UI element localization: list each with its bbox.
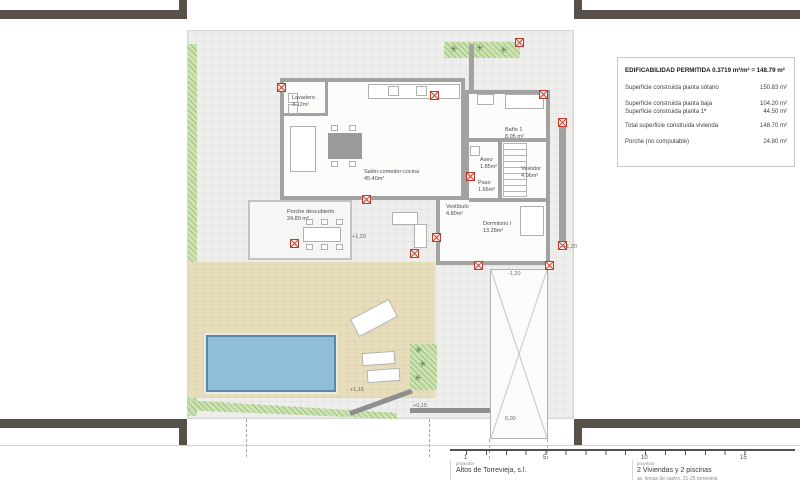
porch-chair bbox=[336, 244, 343, 250]
room-label-porche: Porche descubierto 24.80 m² bbox=[287, 209, 349, 223]
titleblock-divider bbox=[632, 460, 633, 480]
porch-table bbox=[303, 227, 341, 242]
proyecto-label: proyecto bbox=[637, 461, 654, 466]
room-area: 4.80m² bbox=[446, 211, 486, 218]
porch-chair bbox=[321, 244, 328, 250]
info-label: Superficie construida planta 1ª bbox=[625, 109, 706, 115]
plant-icon: ✳ bbox=[450, 45, 458, 54]
room-name: Vestíbulo bbox=[446, 204, 486, 211]
column-marker bbox=[474, 261, 483, 270]
sun-lounger bbox=[367, 368, 401, 383]
room-label-aseo: Aseo 1.85m² bbox=[480, 157, 510, 171]
sink-icon bbox=[416, 86, 427, 96]
room-area: 3.12m² bbox=[292, 102, 332, 109]
column-marker bbox=[290, 239, 299, 248]
swimming-pool bbox=[206, 335, 336, 392]
detached-wall-east bbox=[559, 122, 566, 248]
garden-wall-north bbox=[469, 44, 474, 90]
room-label-dormitorio: Dormitorio I 13.28m² bbox=[483, 221, 529, 235]
info-row: Total superficie construida vivienda 148… bbox=[625, 123, 787, 129]
level-mark-porch: +1,20 bbox=[352, 234, 366, 240]
column-marker bbox=[515, 38, 524, 47]
planting-strip-north: ✳ ✳ ✳ bbox=[444, 42, 520, 58]
level-mark-path: +0,15 bbox=[413, 403, 427, 409]
info-label: Total superficie construida vivienda bbox=[625, 123, 718, 129]
info-value: 44.50 m² bbox=[763, 109, 787, 115]
room-area: 1.85m² bbox=[480, 164, 510, 171]
scale-bar-ticks bbox=[466, 451, 747, 455]
room-name: Paso bbox=[478, 180, 508, 187]
room-label-lavadero: Lavadero 3.12m² bbox=[292, 95, 332, 109]
room-name: Porche descubierto bbox=[287, 209, 349, 216]
promotor-label: promotor bbox=[456, 461, 474, 466]
plant-icon: ✳ bbox=[419, 360, 427, 369]
column-marker bbox=[539, 90, 548, 99]
titleblock-divider bbox=[450, 460, 451, 480]
cooktop-icon bbox=[388, 86, 399, 96]
planting-bed-pool: ✳ ✳ ✳ bbox=[410, 344, 437, 390]
edificability-info-box: EDIFICABILIDAD PERMITIDA 0.3719 m²/m² = … bbox=[617, 57, 795, 167]
room-label-paso: Paso 1.66m² bbox=[478, 180, 508, 194]
boundary-wall-bottom-right bbox=[582, 419, 800, 428]
info-value: 24.80 m² bbox=[763, 139, 787, 145]
ramp-cross-lines bbox=[491, 270, 547, 438]
level-mark-solarium: +1,15 bbox=[350, 387, 364, 393]
info-value: 150.83 m² bbox=[760, 85, 787, 91]
promotor-name: Altos de Torrevieja, s.l. bbox=[456, 467, 526, 474]
room-label-bano: Baño 1 8.05 m² bbox=[505, 127, 545, 141]
boundary-wall-stub-bottom-right bbox=[574, 419, 582, 445]
floor-plan-sheet: ✳ ✳ ✳ ✳ ✳ ✳ bbox=[0, 0, 800, 480]
room-label-vestidor: Vestidor 4.06m² bbox=[521, 166, 555, 180]
reference-line bbox=[246, 419, 247, 457]
room-name: Salón-comedor-cocina bbox=[364, 169, 428, 176]
bath-sink bbox=[477, 94, 494, 105]
boundary-wall-stub-top-left bbox=[179, 0, 187, 19]
room-label-salon: Salón-comedor-cocina 45.40m² bbox=[364, 169, 428, 183]
porch-chair bbox=[306, 244, 313, 250]
room-name: Baño 1 bbox=[505, 127, 545, 134]
column-marker bbox=[558, 118, 567, 127]
room-name: Dormitorio I bbox=[483, 221, 529, 228]
basement-ramp bbox=[490, 269, 548, 439]
boundary-wall-stub-top-right bbox=[574, 0, 582, 19]
kitchen-counter-north bbox=[368, 84, 460, 99]
kitchen-counter-west bbox=[290, 126, 316, 172]
room-area: 13.28m² bbox=[483, 228, 529, 235]
room-name: Lavadero bbox=[292, 95, 332, 102]
room-area: 4.06m² bbox=[521, 173, 555, 180]
dining-chair bbox=[331, 125, 338, 131]
proyecto-name: 2 Viviendas y 2 piscinas bbox=[637, 467, 712, 474]
dining-chair bbox=[331, 161, 338, 167]
room-label-vestibulo: Vestíbulo 4.80m² bbox=[446, 204, 486, 218]
room-name: Vestidor bbox=[521, 166, 555, 173]
sofa bbox=[414, 224, 427, 248]
info-value: 148.70 m² bbox=[760, 123, 787, 129]
info-label: Porche (no computable) bbox=[625, 139, 689, 145]
info-row: Superficie construida planta 1ª 44.50 m² bbox=[625, 109, 787, 115]
sun-lounger bbox=[362, 351, 396, 366]
plant-icon: ✳ bbox=[500, 46, 508, 55]
dining-chair bbox=[349, 161, 356, 167]
room-area: 1.66m² bbox=[478, 187, 508, 194]
plant-icon: ✳ bbox=[415, 346, 423, 355]
info-label: Superficie construida planta baja bbox=[625, 101, 712, 107]
room-area: 45.40m² bbox=[364, 176, 428, 183]
room-area: 24.80 m² bbox=[287, 216, 349, 223]
dimension-ramp-width: 6,00 bbox=[505, 416, 516, 422]
reference-line bbox=[429, 419, 430, 457]
boundary-wall-top-left bbox=[0, 10, 179, 19]
boundary-wall-top-right bbox=[582, 10, 800, 19]
plant-icon: ✳ bbox=[476, 44, 484, 53]
info-row: Superficie construida planta sótano 150.… bbox=[625, 85, 787, 91]
column-marker bbox=[430, 91, 439, 100]
dining-chair bbox=[349, 125, 356, 131]
level-mark-ramp: -1,20 bbox=[508, 271, 521, 277]
column-marker bbox=[277, 83, 286, 92]
info-row: Superficie construida planta baja 104.20… bbox=[625, 101, 787, 107]
partition-bedroom bbox=[469, 198, 546, 202]
scale-tick-label: 5 bbox=[543, 455, 546, 461]
boundary-wall-stub-bottom-left bbox=[179, 419, 187, 445]
level-mark-east-terrace: +1,20 bbox=[563, 244, 577, 250]
room-name: Aseo bbox=[480, 157, 510, 164]
toilet-icon bbox=[470, 146, 480, 156]
column-marker bbox=[432, 233, 441, 242]
boundary-wall-bottom-left bbox=[0, 419, 179, 428]
scale-tick-label: 15 bbox=[740, 455, 747, 461]
info-row: Porche (no computable) 24.80 m² bbox=[625, 139, 787, 145]
info-label: Superficie construida planta sótano bbox=[625, 85, 719, 91]
info-value: 104.20 m² bbox=[760, 101, 787, 107]
column-marker bbox=[410, 249, 419, 258]
column-marker bbox=[466, 172, 475, 181]
info-box-title: EDIFICABILIDAD PERMITIDA 0.3719 m²/m² = … bbox=[625, 67, 787, 74]
column-marker bbox=[545, 261, 554, 270]
room-area: 8.05 m² bbox=[505, 134, 545, 141]
street-line bbox=[0, 445, 800, 446]
dining-table bbox=[328, 133, 362, 159]
plant-icon: ✳ bbox=[414, 374, 422, 383]
proyecto-address: av. lomas de castro, 21-25 torrevieja bbox=[637, 476, 718, 480]
column-marker bbox=[362, 195, 371, 204]
